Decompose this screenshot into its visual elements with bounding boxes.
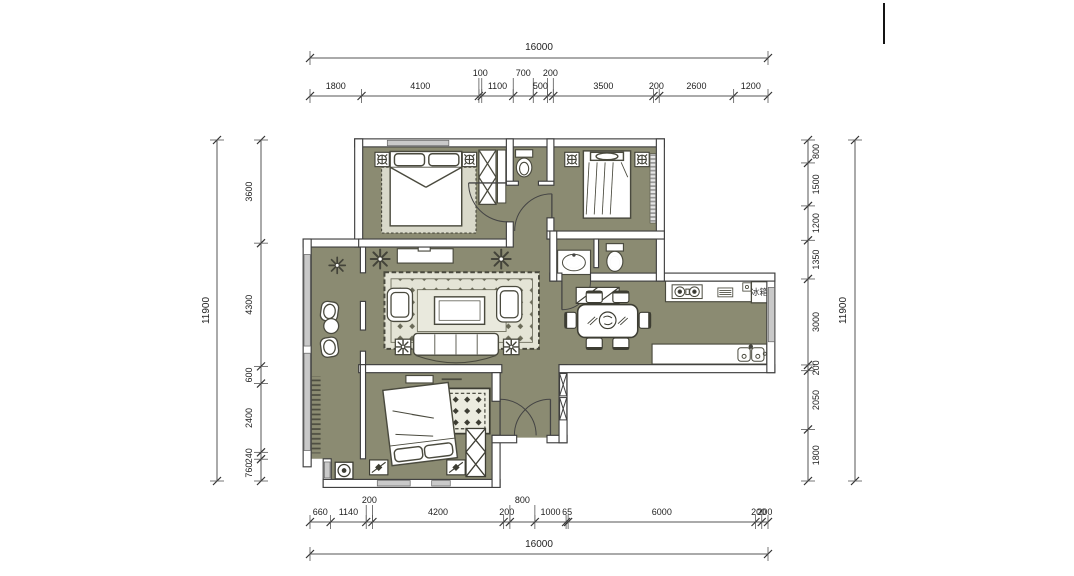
window	[304, 353, 310, 450]
switch-box	[743, 283, 751, 291]
dim-label: 4100	[410, 81, 430, 91]
stove-icon	[672, 285, 702, 299]
dim-label: 1800	[811, 445, 821, 465]
dim-label: 3600	[244, 182, 254, 202]
nightstand-lamp-icon	[635, 152, 649, 166]
dim-label: 800	[515, 495, 530, 505]
nightstand	[370, 460, 388, 475]
dim-label: 11900	[201, 297, 212, 325]
closet-icon	[466, 428, 485, 476]
dim-label: 6000	[652, 507, 672, 517]
toilet-tank	[606, 244, 623, 251]
dim-label: 1200	[741, 81, 761, 91]
dim-label: 65	[562, 507, 572, 517]
nightstand-lamp-icon	[462, 152, 476, 166]
dim-label: 200	[811, 360, 821, 375]
dim-label: 200	[499, 507, 514, 517]
dim-label: 11900	[838, 297, 849, 325]
dim-label: 660	[313, 507, 328, 517]
dimension-chain-bottom: 1600066011402004200200800100065600020020…	[298, 494, 778, 566]
nightstand-lamp-icon	[375, 152, 389, 166]
dim-label: 500	[533, 81, 548, 91]
dim-label: 100	[473, 68, 488, 78]
dim-label: 1140	[339, 507, 358, 517]
master-bed	[390, 151, 462, 225]
fridge-label: 冰箱	[751, 286, 769, 297]
console-table	[397, 247, 453, 263]
window	[377, 481, 410, 486]
dim-label: 700	[516, 68, 531, 78]
fridge: 冰箱	[751, 282, 769, 303]
window	[304, 254, 310, 346]
nightstand-lamp-icon	[565, 152, 579, 166]
coffee-table	[435, 297, 485, 324]
dim-label: 600	[244, 367, 254, 382]
dim-label: 1500	[811, 174, 821, 194]
dim-label: 2600	[686, 81, 706, 91]
dim-label: 1350	[811, 250, 821, 270]
bed-3	[383, 382, 458, 465]
window	[387, 140, 449, 145]
dim-label: 2400	[244, 408, 254, 428]
dim-label: 1800	[326, 81, 346, 91]
armchair	[387, 288, 412, 321]
dim-label: 200	[362, 495, 377, 505]
plant-icon	[371, 250, 390, 269]
vent-icon	[718, 288, 733, 297]
dim-label: 1200	[811, 213, 821, 233]
armchair	[497, 287, 522, 322]
dim-label: 1100	[488, 81, 507, 91]
dimension-chain-left: 11900360043006002400240760	[200, 126, 272, 490]
dim-label: 800	[811, 144, 821, 159]
toilet-icon	[607, 251, 623, 271]
toilet-tank	[516, 150, 533, 157]
dim-label: 4200	[428, 507, 448, 517]
dim-label: 2050	[811, 390, 821, 410]
washing-machine-icon	[335, 462, 353, 479]
balcony-chair	[320, 336, 340, 358]
dim-label: 240	[244, 448, 254, 463]
dimension-chain-right: 11900800150012001350300020020501800	[799, 126, 869, 490]
plant-icon	[396, 340, 410, 354]
window	[432, 481, 451, 486]
plant-icon	[504, 340, 518, 354]
dim-label: 760	[244, 463, 254, 478]
window	[324, 462, 330, 478]
dim-label: 3500	[593, 81, 613, 91]
shelf	[497, 150, 505, 203]
dim-label: 200	[649, 81, 664, 91]
bed-2	[583, 151, 630, 218]
storage-hatch	[312, 376, 322, 453]
dim-label: 200	[757, 507, 772, 517]
balcony-table	[324, 319, 339, 334]
dining-table	[578, 305, 638, 338]
dim-label: 3000	[811, 312, 821, 332]
dim-label: 16000	[525, 42, 553, 53]
floor-plan: 冰箱	[300, 130, 778, 492]
dimension-chain-top: 1600018004100100110070050020035002002600…	[298, 28, 778, 106]
dim-label: 1000	[540, 507, 560, 517]
wc-nook	[516, 150, 533, 177]
plant-icon	[329, 257, 345, 273]
nightstand	[447, 460, 465, 475]
dim-label: 200	[543, 68, 558, 78]
stray-mark	[883, 3, 885, 44]
window	[768, 287, 774, 341]
dim-label: 16000	[525, 539, 553, 550]
plant-icon	[492, 250, 511, 269]
floor-plan-page: 1600018004100100110070050020035002002600…	[0, 0, 1074, 576]
wardrobe-icon	[479, 150, 496, 204]
dim-label: 4300	[244, 295, 254, 315]
